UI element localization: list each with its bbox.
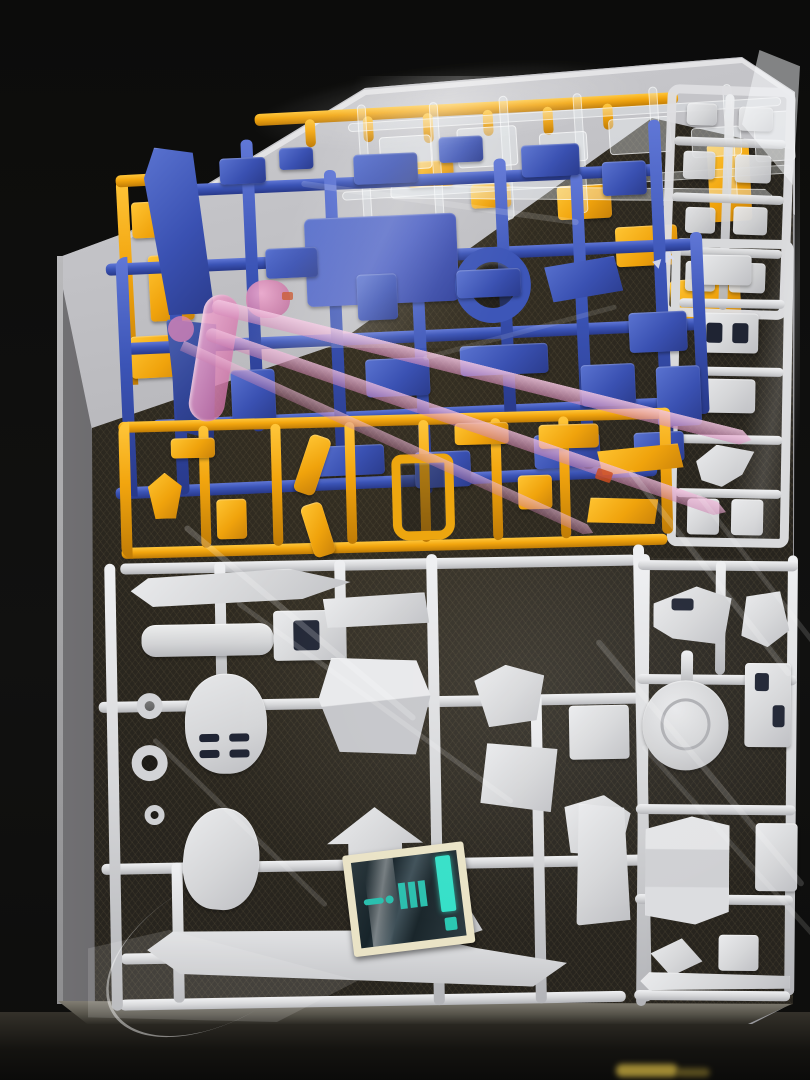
teal-square-small [444,917,457,931]
blue-part [456,268,521,299]
sprue-rail [634,990,790,1001]
table-glint-dim [676,1068,710,1077]
blue-part [628,311,688,353]
rifle-barrel-part [141,623,274,657]
dome-slot [229,733,249,741]
yellow-blade-part [292,433,332,497]
blue-part [580,363,636,407]
sprue-rail [636,554,650,1006]
sprue-rail [270,424,283,546]
dome-slot [199,750,219,758]
claw-part [653,586,732,645]
part-socket [732,323,748,343]
blue-part [460,343,549,377]
photo-model-kit-box: A [0,0,810,1080]
white-part [718,935,758,971]
dome-slot [229,749,249,757]
yellow-part [518,475,553,510]
yellow-part [538,423,599,449]
sprue-rail [681,650,693,684]
polycap-part [735,154,772,183]
sprue-rail [120,555,636,575]
yellow-runner-bottom [118,401,678,568]
white-part [650,938,702,976]
claw-slot [672,598,694,610]
blue-part [265,247,318,279]
wheel-inner-ring [660,698,710,750]
plate-hole [405,243,440,268]
polycap-part [733,206,768,235]
folded-panel-part [318,656,432,756]
sprue-rail [104,564,123,1011]
blue-fin-part [143,145,214,316]
sprue-rail [659,408,673,534]
blue-part [544,255,624,302]
sprue-rail [636,804,796,815]
blue-part [365,357,431,398]
tall-panel-part [755,823,798,891]
tall-armor-part [574,803,630,926]
yellow-shield-part [391,453,455,541]
armor-chunk-part [474,664,545,727]
sticker-sheet [342,841,476,957]
armor-chunk-part [569,705,630,760]
blue-part [279,147,314,170]
table-glint [616,1064,678,1077]
white-runner-bottom-right [634,554,800,1009]
dome-shield-part [184,673,268,774]
blue-part [219,157,266,185]
white-part [731,499,764,536]
dome-slot [199,734,219,742]
yellow-part [454,422,509,445]
armor-chunk-part [479,742,558,813]
sprue-rail [120,991,626,1011]
yellow-part [171,437,216,458]
ring-part [144,805,164,825]
sprue-rail [531,694,547,1003]
polycap-part [738,107,773,132]
blue-part [353,152,418,185]
ring-part [131,745,168,782]
rifle-slot [293,620,320,650]
yellow-part [148,472,183,519]
yellow-part [216,499,247,540]
armor-panel-part [645,816,730,925]
yellow-part [586,496,659,526]
blue-mesh-panel [532,174,604,217]
blue-part [356,273,398,321]
sprue-rail [344,422,357,544]
claw-part [741,591,789,647]
box-left-edge-line [57,256,63,1004]
blue-part [438,135,483,163]
thin-blade-part [640,972,790,991]
socket-slot [755,673,769,691]
blue-part [602,160,647,196]
blue-part [521,143,580,177]
ring-part [136,693,162,719]
sprue-rail [118,422,133,559]
dome-shield-part-2 [179,805,264,913]
socket-slot [772,705,784,727]
